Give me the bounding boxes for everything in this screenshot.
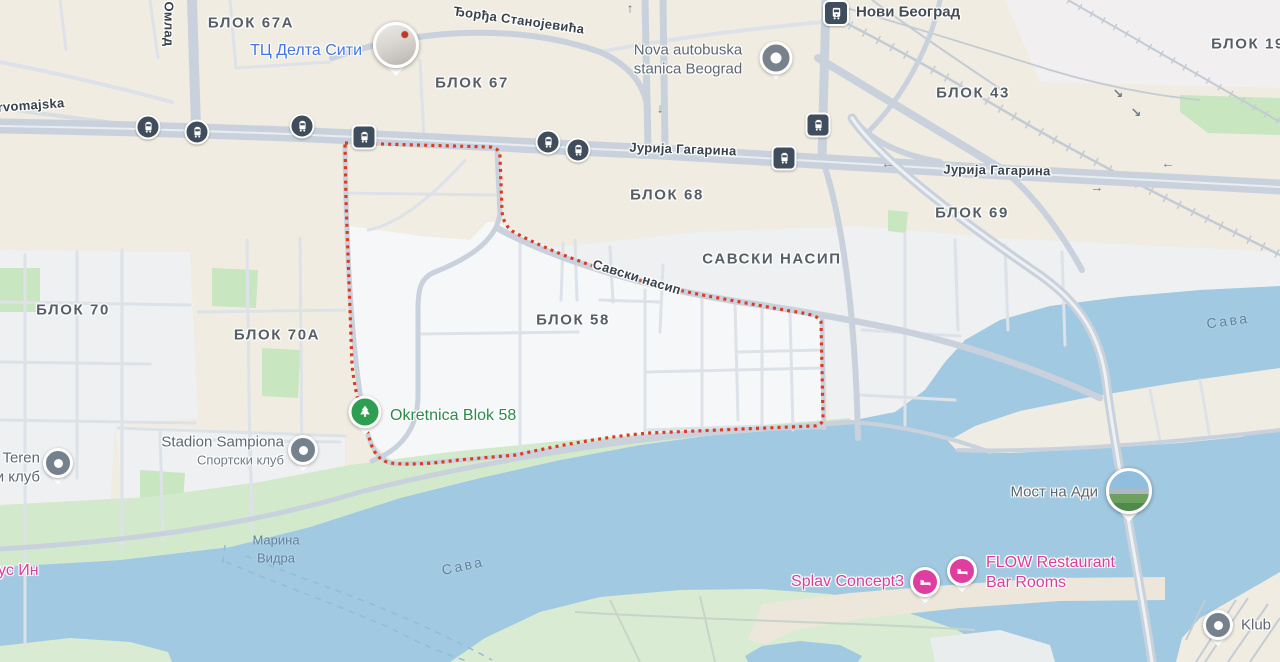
street-jurija-gagarina-1: Јурија Гагарина: [629, 140, 737, 159]
transit-stop-3[interactable]: [290, 114, 315, 139]
label-blok-43: БЛОК 43: [936, 85, 1010, 102]
label-blok-67: БЛОК 67: [435, 75, 509, 92]
train-station-icon: [823, 0, 849, 26]
label-blok-58: БЛОК 58: [536, 312, 610, 329]
bus-stop-icon: [566, 138, 591, 163]
road-direction-arrow: ↓: [657, 101, 664, 116]
water-label-marina-vidra: МаринаВидра: [252, 531, 299, 566]
transit-stop-4[interactable]: [536, 130, 561, 155]
transit-stop-8[interactable]: [772, 146, 797, 171]
bus-stop-icon: [290, 114, 315, 139]
label-blok-67a: БЛОК 67А: [208, 15, 294, 32]
road-direction-arrow: ←: [882, 156, 895, 171]
label-blok-68: БЛОК 68: [630, 187, 704, 204]
poi-novi-beograd-station-marker[interactable]: [823, 0, 849, 26]
bus-icon: [142, 121, 154, 133]
transit-stop-1[interactable]: [136, 115, 161, 140]
transit-stop-6[interactable]: [352, 125, 377, 150]
poi-okretnica-blok-58-marker[interactable]: [349, 396, 382, 429]
bus-icon: [358, 131, 370, 143]
label-blok-69: БЛОК 69: [935, 205, 1009, 222]
road-direction-arrow: ←: [1162, 156, 1175, 171]
poi-splav-concept3-marker[interactable]: [910, 567, 940, 597]
poi-nova-autobuska-stanica[interactable]: Nova autobuskastanica Beograd: [634, 41, 742, 79]
poi-teren-klub[interactable]: Terenи клуб: [0, 449, 40, 487]
bus-stop-icon: [185, 120, 210, 145]
bed-icon: [919, 576, 932, 589]
poi-most-na-adi[interactable]: Мост на Ади: [1011, 484, 1098, 503]
bus-icon: [542, 136, 554, 148]
bus-stop-icon: [772, 146, 797, 171]
water-label-sava-2: Сава: [1205, 309, 1250, 334]
bus-icon: [191, 126, 203, 138]
place-pin-icon: [43, 448, 73, 478]
poi-tc-delta-siti-marker[interactable]: [373, 22, 419, 68]
poi-flow-restaurant-bar-rooms-marker[interactable]: [947, 556, 977, 586]
bus-icon: [778, 152, 790, 164]
place-pin-icon: [1203, 610, 1233, 640]
water-label-sava-1: Сава: [440, 552, 486, 579]
label-blok-19: БЛОК 19: [1211, 36, 1280, 53]
road-direction-arrow: ↘: [1113, 86, 1124, 102]
transit-stop-5[interactable]: [566, 138, 591, 163]
road-direction-arrow: ↑: [627, 1, 634, 16]
map-canvas[interactable]: БЛОК 67АБЛОК 67БЛОК 68БЛОК 43БЛОК 19БЛОК…: [0, 0, 1280, 662]
label-blok-70: БЛОК 70: [36, 302, 110, 319]
street-omladinskih-brigada: Омлад: [162, 2, 177, 47]
poi-stadion-sampiona[interactable]: Stadion SampionaСпортски клуб: [161, 434, 284, 469]
bus-icon: [572, 144, 584, 156]
poi-tc-delta-siti[interactable]: ТЦ Делта Сити: [250, 41, 362, 61]
street-jurija-gagarina-2: Јурија Гагарина: [943, 162, 1051, 179]
road-direction-arrow: ↘: [1131, 105, 1142, 121]
label-savski-nasip-area: САВСКИ НАСИП: [702, 251, 841, 268]
street-prvomajska: rvomajska: [0, 95, 65, 115]
poi-nova-autobuska-stanica-marker[interactable]: [760, 42, 793, 75]
map-overlay: БЛОК 67АБЛОК 67БЛОК 68БЛОК 43БЛОК 19БЛОК…: [0, 0, 1280, 662]
place-pin-icon: [288, 435, 318, 465]
poi-klub-marker[interactable]: [1203, 610, 1233, 640]
tree-icon: [358, 405, 373, 420]
poi-novi-beograd-station[interactable]: Нови Београд: [856, 4, 960, 23]
tree-pin-icon: [349, 396, 382, 429]
place-dot-icon: [760, 42, 793, 75]
transit-stop-7[interactable]: [806, 113, 831, 138]
poi-stadion-sampiona-marker[interactable]: [288, 435, 318, 465]
poi-okretnica-blok-58[interactable]: Okretnica Blok 58: [390, 406, 516, 426]
road-direction-arrow: →: [1091, 180, 1104, 195]
bus-stop-icon: [352, 125, 377, 150]
bus-icon: [812, 119, 824, 131]
mall-photo-icon: [373, 22, 419, 68]
label-blok-70a: БЛОК 70А: [234, 327, 320, 344]
street-djordja-stanojevica: Ђорђа Станојевића: [453, 3, 586, 36]
bed-icon: [956, 565, 969, 578]
bus-stop-icon: [136, 115, 161, 140]
poi-us-in[interactable]: ус Ин: [0, 561, 39, 581]
transit-stop-2[interactable]: [185, 120, 210, 145]
poi-flow-restaurant-bar-rooms[interactable]: FLOW RestaurantBar Rooms: [986, 553, 1115, 593]
poi-most-na-adi-marker[interactable]: [1106, 468, 1152, 514]
bus-stop-icon: [536, 130, 561, 155]
train-icon: [830, 7, 843, 20]
bridge-photo-icon: [1106, 468, 1152, 514]
poi-teren-klub-marker[interactable]: [43, 448, 73, 478]
bus-stop-icon: [806, 113, 831, 138]
street-savski-nasip: Савски насип: [591, 256, 683, 297]
poi-splav-concept3[interactable]: Splav Concept3: [791, 572, 904, 592]
bus-icon: [296, 120, 308, 132]
lodging-pin-icon: [947, 556, 977, 586]
lodging-pin-icon: [910, 567, 940, 597]
poi-klub[interactable]: Klub: [1241, 617, 1271, 636]
